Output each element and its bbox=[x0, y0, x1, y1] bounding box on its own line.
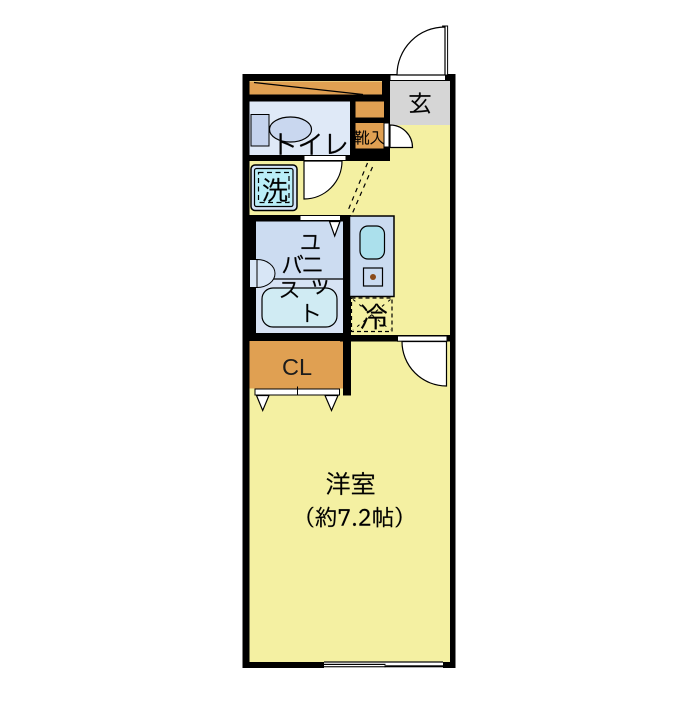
svg-text:CL: CL bbox=[282, 354, 312, 380]
